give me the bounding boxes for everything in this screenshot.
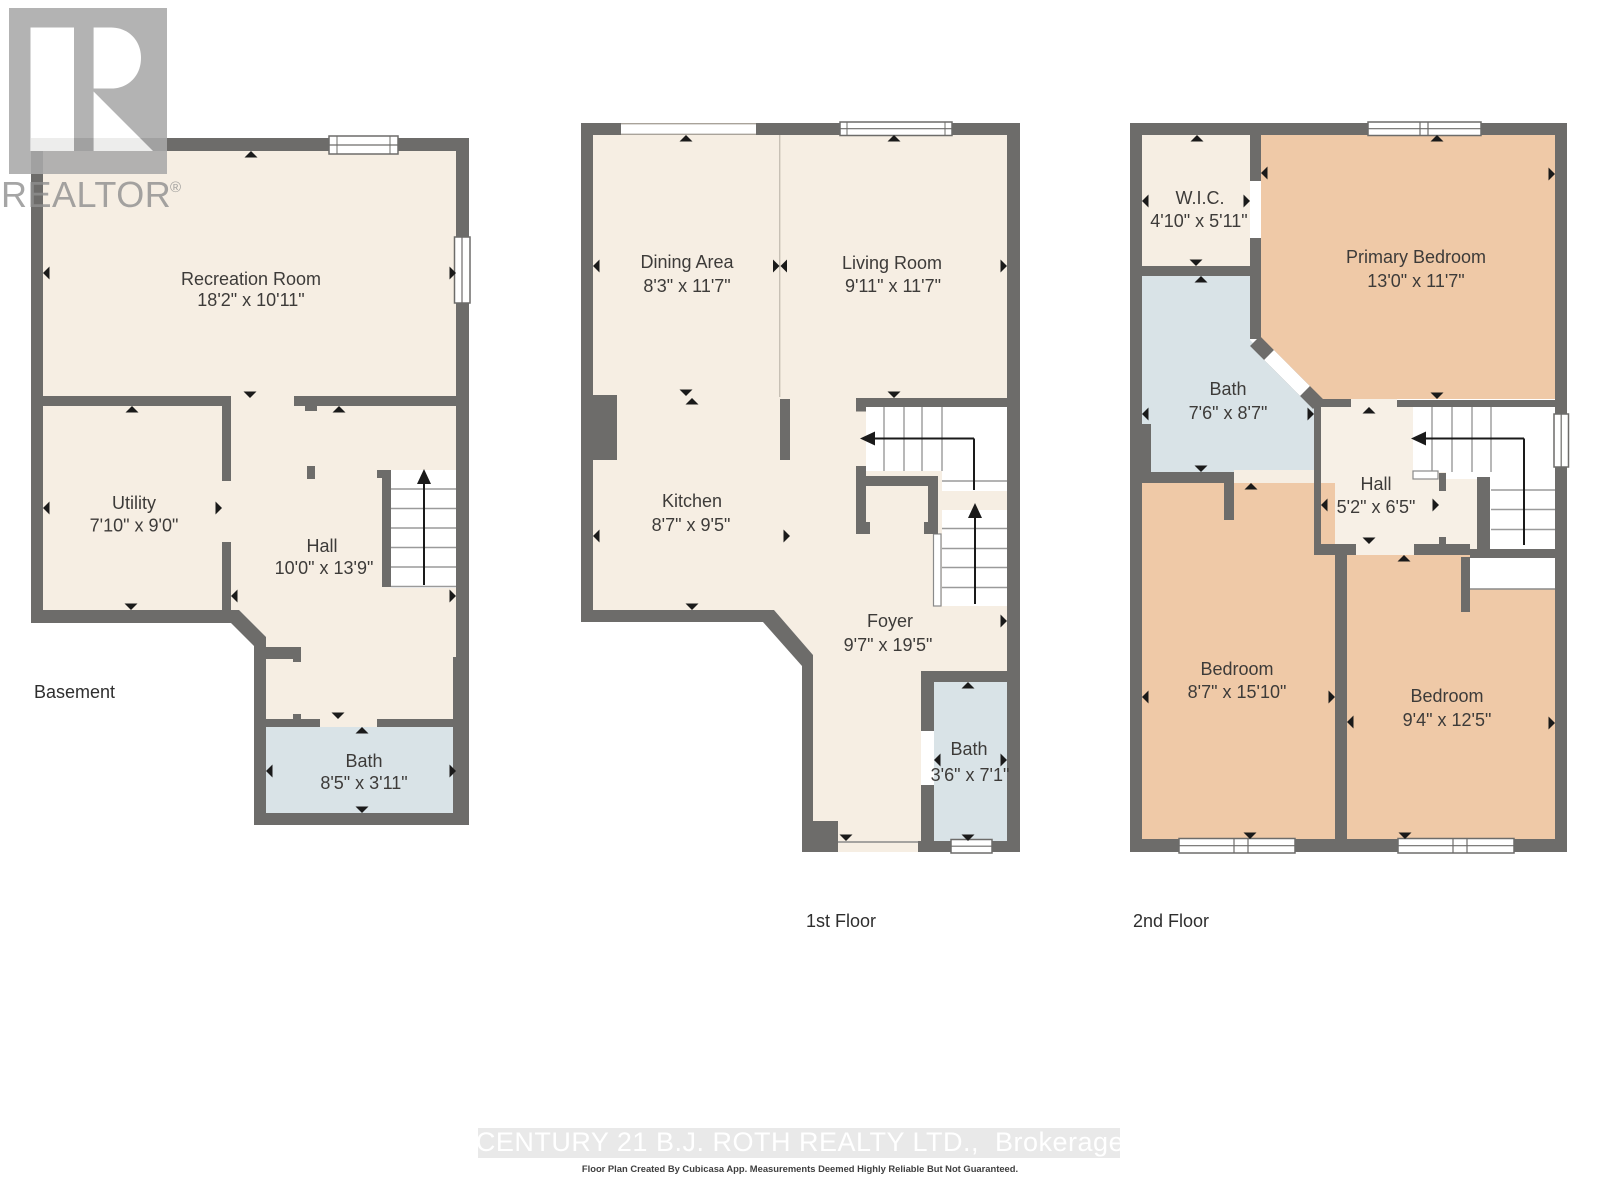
svg-text:®: ® xyxy=(170,179,181,196)
svg-text:18'2" x 10'11": 18'2" x 10'11" xyxy=(197,290,304,310)
svg-text:9'4" x 12'5": 9'4" x 12'5" xyxy=(1403,710,1492,730)
svg-text:Living Room: Living Room xyxy=(842,253,942,273)
svg-text:10'0" x 13'9": 10'0" x 13'9" xyxy=(275,558,374,578)
svg-text:Floor Plan Created By Cubicasa: Floor Plan Created By Cubicasa App. Meas… xyxy=(582,1163,1018,1174)
svg-text:3'6" x 7'1": 3'6" x 7'1" xyxy=(931,765,1010,785)
svg-text:REALTOR: REALTOR xyxy=(1,174,171,215)
svg-text:Dining Area: Dining Area xyxy=(640,252,734,272)
svg-text:Utility: Utility xyxy=(112,493,156,513)
svg-text:13'0" x 11'7": 13'0" x 11'7" xyxy=(1367,271,1464,291)
svg-text:Basement: Basement xyxy=(34,682,115,702)
svg-text:Bath: Bath xyxy=(1209,379,1246,399)
svg-text:8'7" x 15'10": 8'7" x 15'10" xyxy=(1188,682,1287,702)
svg-text:Primary Bedroom: Primary Bedroom xyxy=(1346,247,1486,267)
svg-text:Kitchen: Kitchen xyxy=(662,491,722,511)
svg-text:8'7" x 9'5": 8'7" x 9'5" xyxy=(652,515,731,535)
svg-text:7'10" x 9'0": 7'10" x 9'0" xyxy=(90,516,179,536)
svg-text:8'5" x 3'11": 8'5" x 3'11" xyxy=(320,773,407,793)
svg-text:8'3" x 11'7": 8'3" x 11'7" xyxy=(643,276,730,296)
svg-text:Hall: Hall xyxy=(306,536,337,556)
svg-text:1st Floor: 1st Floor xyxy=(806,911,876,931)
svg-text:Foyer: Foyer xyxy=(867,611,913,631)
svg-text:5'2" x 6'5": 5'2" x 6'5" xyxy=(1337,497,1416,517)
svg-text:2nd Floor: 2nd Floor xyxy=(1133,911,1209,931)
svg-text:Hall: Hall xyxy=(1360,474,1391,494)
svg-text:W.I.C.: W.I.C. xyxy=(1176,188,1225,208)
svg-text:Bath: Bath xyxy=(345,751,382,771)
svg-text:9'11" x 11'7": 9'11" x 11'7" xyxy=(845,276,941,296)
svg-text:4'10" x 5'11": 4'10" x 5'11" xyxy=(1150,211,1247,231)
svg-text:Recreation Room: Recreation Room xyxy=(181,269,321,289)
svg-text:CENTURY 21 B.J. ROTH REALTY LT: CENTURY 21 B.J. ROTH REALTY LTD., Broker… xyxy=(476,1127,1124,1157)
svg-text:7'6" x 8'7": 7'6" x 8'7" xyxy=(1189,403,1268,423)
svg-text:Bath: Bath xyxy=(950,739,987,759)
svg-text:Bedroom: Bedroom xyxy=(1200,659,1273,679)
svg-text:9'7" x 19'5": 9'7" x 19'5" xyxy=(844,635,933,655)
svg-text:Bedroom: Bedroom xyxy=(1410,686,1483,706)
